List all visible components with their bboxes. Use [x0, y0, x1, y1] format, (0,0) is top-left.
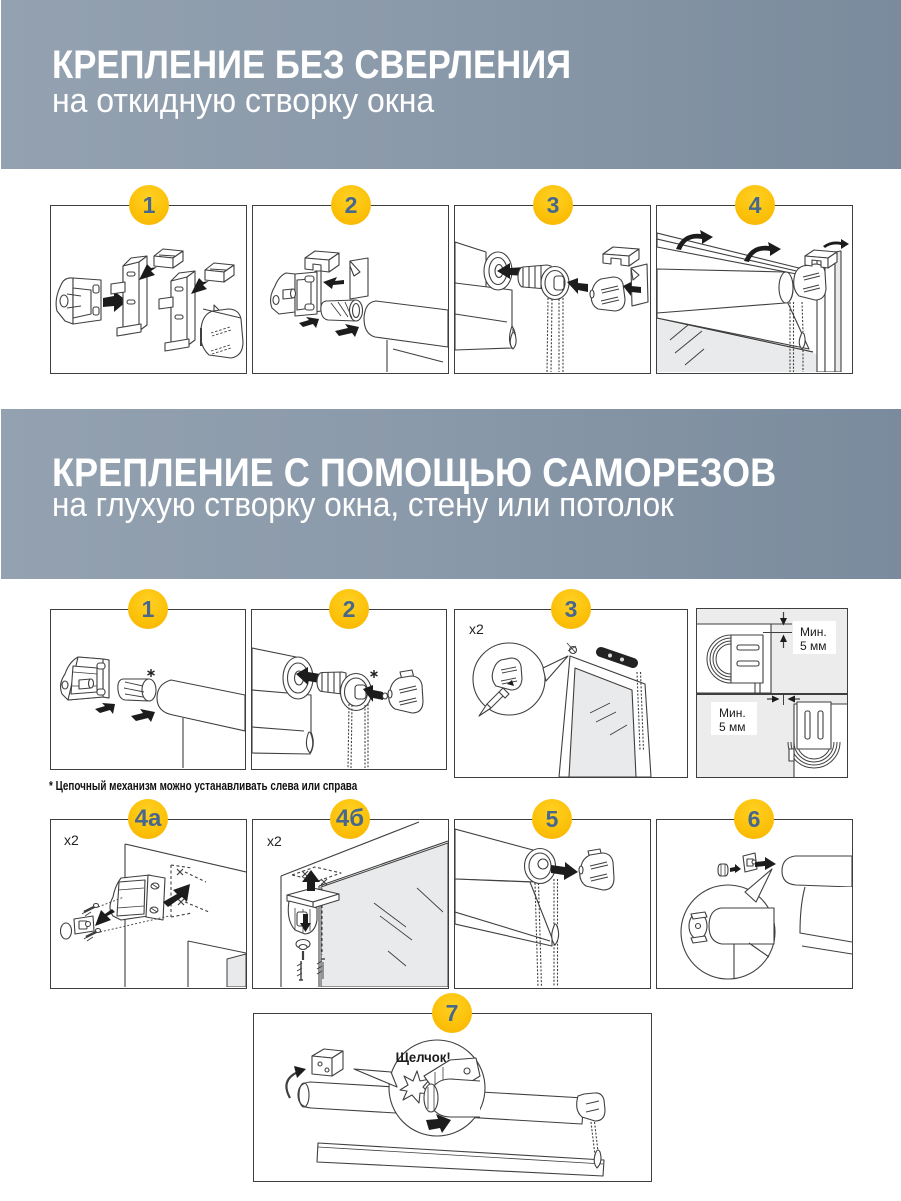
svg-text:Щелчок!: Щелчок!: [396, 1050, 451, 1065]
svg-text:Мин.: Мин.: [800, 625, 827, 639]
svg-text:x2: x2: [64, 832, 79, 848]
svg-text:Мин.: Мин.: [719, 706, 746, 720]
svg-text:x2: x2: [469, 621, 484, 637]
svg-text:5 мм: 5 мм: [800, 639, 827, 653]
svg-text:x2: x2: [267, 833, 282, 849]
svg-text:5 мм: 5 мм: [719, 720, 746, 734]
